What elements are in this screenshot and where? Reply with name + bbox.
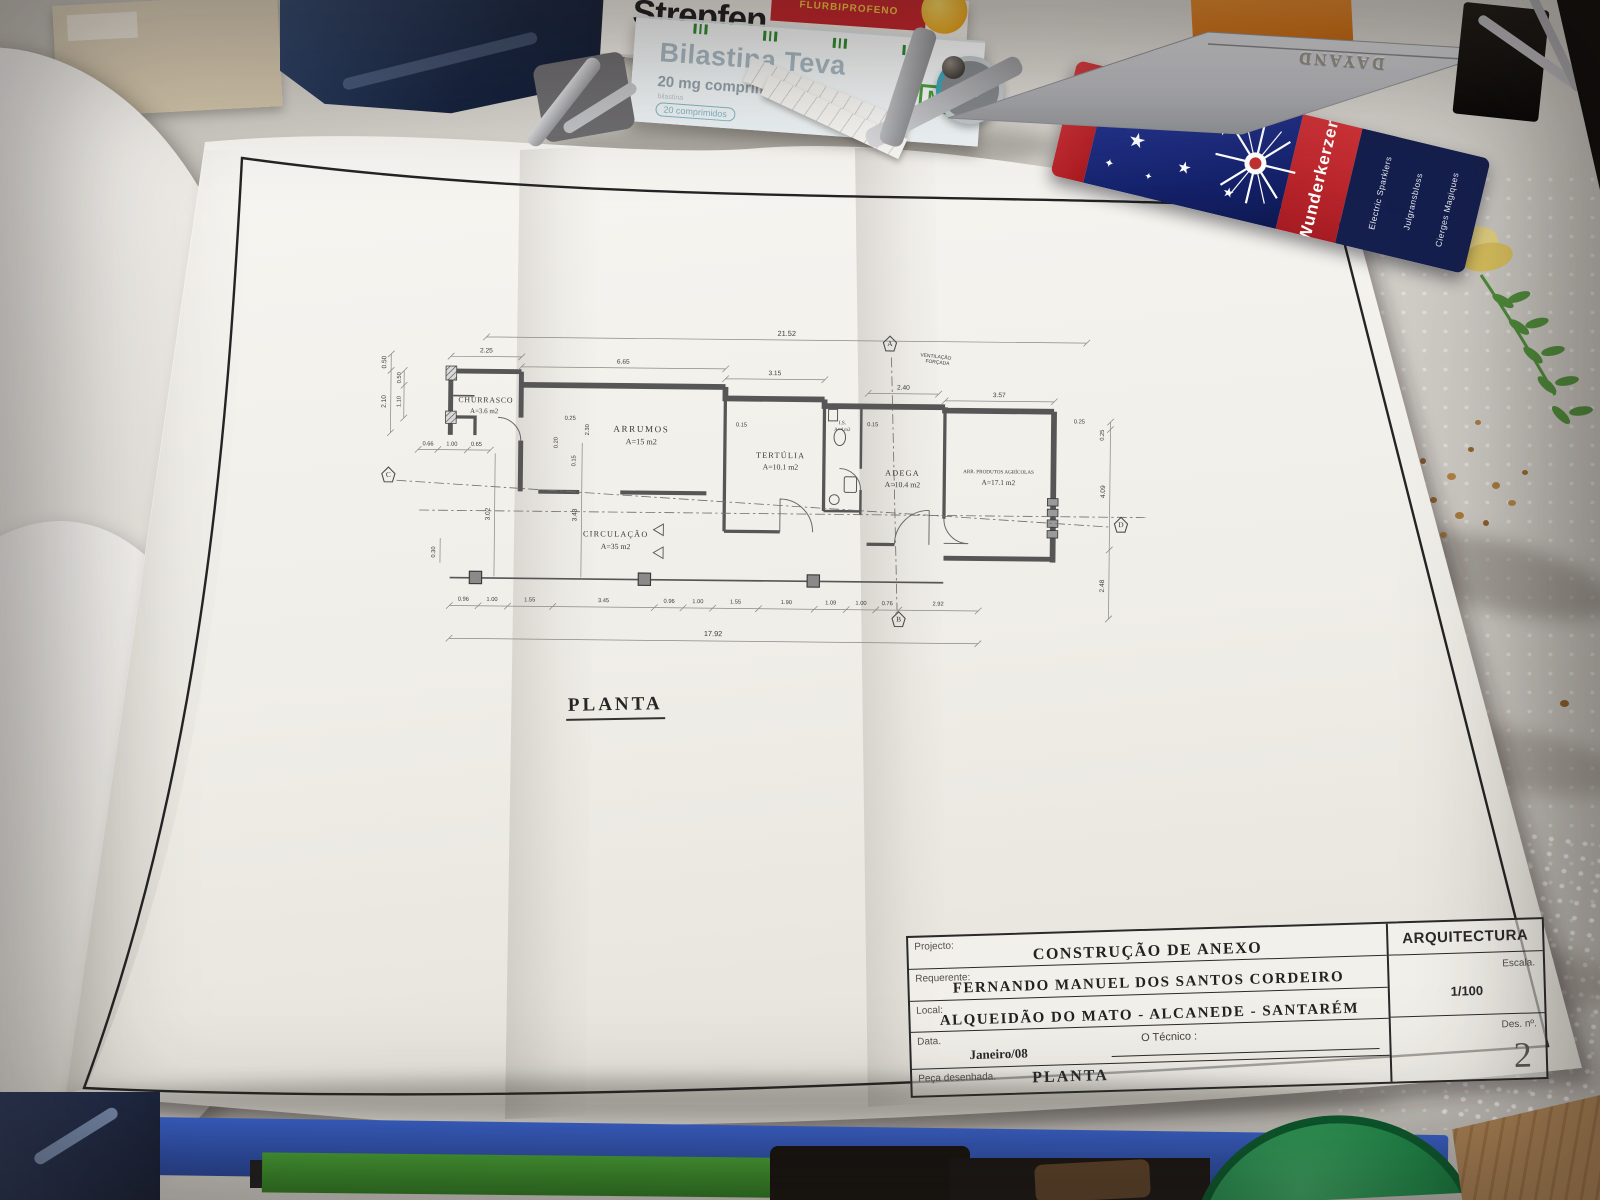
svg-text:0.25: 0.25 [565,416,576,422]
svg-text:1.00: 1.00 [486,597,497,603]
svg-text:A=10.4 m2: A=10.4 m2 [885,480,921,489]
section-mark-a: A [887,339,893,348]
paper-edge-shadow [60,1078,1400,1120]
drawing-no-label: Des. nº. [1501,1018,1537,1030]
hatched-pillar [446,366,457,380]
room-circulacao: CIRCULAÇÃO [583,528,649,539]
room-adega: ADEGA [885,469,920,478]
discipline-cell: ARQUITECTURA [1388,919,1543,955]
svg-text:0.15: 0.15 [571,455,577,466]
svg-text:0.96: 0.96 [664,599,675,605]
svg-text:0.25: 0.25 [1074,419,1085,425]
svg-text:4.09: 4.09 [1100,485,1107,498]
svg-text:3.43: 3.43 [572,508,579,521]
svg-text:1.00: 1.00 [855,601,866,607]
svg-text:0.65: 0.65 [471,442,482,448]
section-mark-c: C [386,470,391,479]
sparkler-label-sv: Julgransbloss [1401,172,1424,231]
title-block: Projecto: CONSTRUÇÃO DE ANEXO Requerente… [906,917,1549,1098]
svg-text:0.20: 0.20 [554,437,560,448]
svg-text:0.50: 0.50 [381,355,388,368]
flurbiprofeno-text: FLURBIPROFENO [799,0,899,17]
svg-text:2.48: 2.48 [1099,579,1106,592]
bilastina-subtext: bilastina [657,93,683,102]
scale-cell: Escala. 1/100 [1389,951,1545,1018]
svg-text:6.65: 6.65 [617,359,630,366]
svg-text:1.00: 1.00 [446,442,457,448]
svg-text:A=15 m2: A=15 m2 [626,437,657,446]
svg-text:A=35 m2: A=35 m2 [601,542,631,551]
svg-text:21.52: 21.52 [777,329,796,338]
discipline-value: ARQUITECTURA [1402,926,1528,947]
svg-text:3.15: 3.15 [768,370,781,377]
svg-text:2.25: 2.25 [480,347,493,354]
svg-text:2.30: 2.30 [585,424,591,435]
technician-label: O Técnico : [1141,1031,1197,1045]
svg-text:3.57: 3.57 [993,392,1006,399]
svg-text:0.15: 0.15 [736,422,747,428]
svg-text:1.10: 1.10 [397,396,403,407]
svg-text:A=10.1 m2: A=10.1 m2 [763,462,799,471]
bilastina-pack-size: 20 comprimidos [655,102,735,122]
long-scissors-blade [940,14,1520,164]
svg-text:0.76: 0.76 [882,601,893,607]
date-label: Data. [917,1036,941,1048]
svg-text:1.55: 1.55 [524,597,535,603]
tick-marks-icon [833,38,847,49]
svg-text:0.66: 0.66 [422,441,433,447]
svg-text:1.90: 1.90 [781,600,792,606]
svg-text:0.96: 0.96 [458,597,469,603]
room-churrasco: CHURRASCO [458,395,513,405]
brown-object [1034,1159,1151,1200]
svg-text:1.00: 1.00 [692,599,703,605]
signature-line [1112,1048,1380,1057]
room-is: I.S. [839,420,846,426]
drawing-no-cell: Des. nº. 2 [1391,1013,1547,1082]
sparkler-label-en: Electric Sparklers [1366,155,1393,230]
svg-text:0.50: 0.50 [397,372,403,383]
svg-text:0.15: 0.15 [867,422,878,428]
svg-text:A=17.1 m2: A=17.1 m2 [982,478,1016,487]
svg-text:2.10: 2.10 [381,395,388,408]
tick-marks-icon [763,31,777,42]
svg-text:0.30: 0.30 [431,546,437,557]
section-mark-d: D [1118,520,1124,529]
hatched-pillar [445,411,456,423]
fold-crease [505,146,600,1119]
tick-marks-icon [693,24,707,35]
svg-text:2.40: 2.40 [897,385,910,392]
svg-text:3.02: 3.02 [485,507,492,520]
section-mark-b: B [896,615,901,624]
room-tertulia: TERTÚLIA [756,450,805,461]
sparkler-label-fr: Cierges Magiques [1433,171,1461,248]
navy-corner-object [0,1092,160,1200]
plan-caption: PLANTA [566,693,665,721]
green-lid [1186,1107,1462,1200]
svg-text:A=4 m2: A=4 m2 [834,428,851,433]
svg-text:A=3.6 m2: A=3.6 m2 [470,407,499,415]
dark-object [770,1146,970,1200]
svg-text:0.25: 0.25 [1100,430,1106,441]
scale-value: 1/100 [1390,981,1544,1001]
svg-text:2.92: 2.92 [932,602,943,608]
photo-scene: A B C D 21.52 2.25 6.65 3.15 2.40 3.57 0… [0,0,1600,1200]
svg-text:17.92: 17.92 [704,629,723,638]
room-arrumos: ARRUMOS [613,424,669,435]
svg-text:1.55: 1.55 [730,599,741,605]
drawing-no-value: 2 [1513,1033,1532,1076]
date-value: Janeiro/08 [969,1046,1028,1064]
svg-text:1.09: 1.09 [825,600,836,606]
svg-text:3.45: 3.45 [598,598,609,604]
scale-label: Escala. [1502,957,1535,969]
